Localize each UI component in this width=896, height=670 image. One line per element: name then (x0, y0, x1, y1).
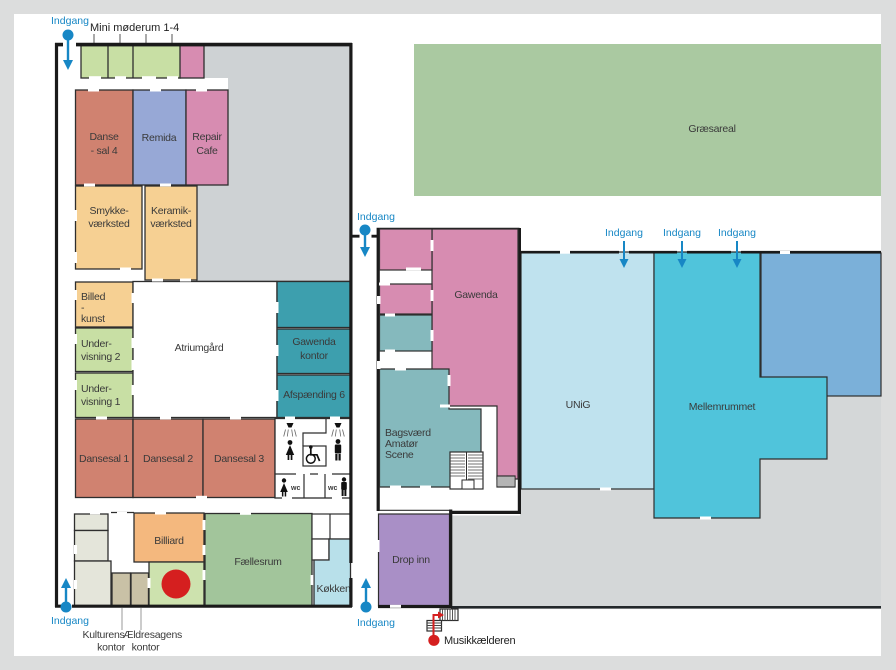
svg-text:Gawenda: Gawenda (292, 336, 336, 348)
svg-text:kontor: kontor (300, 350, 328, 362)
svg-text:Dansesal 1: Dansesal 1 (79, 453, 129, 465)
svg-text:Mellemrummet: Mellemrummet (689, 401, 756, 413)
svg-text:Indgang: Indgang (663, 227, 701, 239)
svg-text:Kulturens: Kulturens (82, 629, 124, 641)
svg-text:visning 2: visning 2 (81, 351, 121, 363)
svg-text:Indgang: Indgang (357, 211, 395, 223)
svg-text:UNiG: UNiG (566, 399, 591, 411)
svg-text:Musikkælderen: Musikkælderen (444, 635, 515, 647)
svg-text:wc: wc (327, 485, 337, 492)
svg-text:kontor: kontor (132, 642, 160, 654)
svg-text:Ældresagens: Ældresagens (123, 629, 182, 641)
svg-text:kunst: kunst (81, 313, 105, 325)
svg-text:Remida: Remida (142, 132, 177, 144)
svg-text:Indgang: Indgang (51, 615, 89, 627)
svg-text:Cafe: Cafe (196, 145, 218, 157)
svg-text:Dansesal 2: Dansesal 2 (143, 453, 193, 465)
svg-text:Indgang: Indgang (605, 227, 643, 239)
svg-text:Danse: Danse (89, 131, 119, 143)
svg-text:Græsareal: Græsareal (688, 123, 735, 135)
svg-text:Afspænding 6: Afspænding 6 (283, 389, 345, 401)
svg-text:værksted: værksted (150, 218, 192, 230)
svg-text:Keramik-: Keramik- (151, 205, 192, 217)
svg-text:Mini møderum 1-4: Mini møderum 1-4 (90, 22, 179, 34)
svg-text:visning 1: visning 1 (81, 396, 121, 408)
svg-text:Billiard: Billiard (154, 535, 184, 547)
svg-text:Under-: Under- (81, 338, 112, 350)
svg-text:Under-: Under- (81, 383, 112, 395)
svg-text:Atriumgård: Atriumgård (175, 342, 224, 354)
svg-text:Fællesrum: Fællesrum (234, 556, 282, 568)
svg-text:Scene: Scene (385, 449, 414, 461)
svg-text:Indgang: Indgang (357, 617, 395, 629)
svg-text:Smykke-: Smykke- (89, 205, 129, 217)
svg-text:Drop inn: Drop inn (392, 554, 430, 566)
svg-text:Køkken: Køkken (316, 583, 351, 595)
svg-text:Repair: Repair (192, 131, 222, 143)
svg-text:værksted: værksted (88, 218, 130, 230)
svg-text:Indgang: Indgang (718, 227, 756, 239)
svg-text:wc: wc (290, 485, 300, 492)
svg-text:Billed: Billed (81, 291, 106, 303)
svg-text:- sal 4: - sal 4 (91, 145, 118, 157)
svg-text:kontor: kontor (97, 642, 125, 654)
svg-text:Indgang: Indgang (51, 15, 89, 27)
svg-text:Gawenda: Gawenda (454, 289, 498, 301)
svg-text:Dansesal 3: Dansesal 3 (214, 453, 264, 465)
